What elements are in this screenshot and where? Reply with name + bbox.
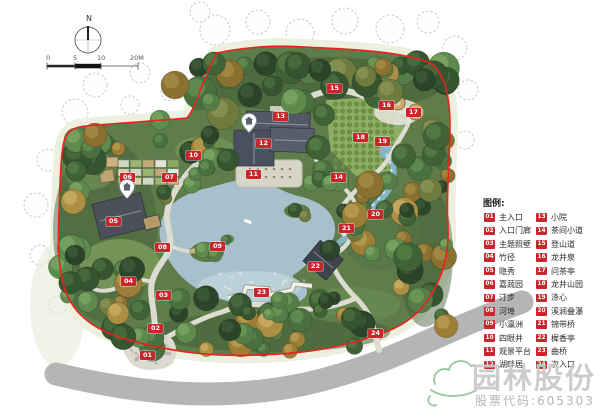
legend-badge: 13: [536, 213, 547, 222]
map-marker-21: 21: [339, 224, 354, 233]
legend-label: 登山道: [551, 239, 575, 250]
scale-tick-10: 10: [97, 54, 105, 62]
legend-label: 涤心: [551, 292, 567, 303]
legend-badge: 20: [536, 307, 547, 316]
legend-label: 嘉蔬园: [499, 279, 523, 290]
legend-label: 小瀛洲: [499, 319, 523, 330]
scale-tick-20m: 20M: [130, 54, 144, 62]
legend-badge: 15: [536, 240, 547, 249]
legend-badge: 09: [484, 320, 495, 329]
legend-badge: 06: [484, 280, 495, 289]
legend-item-12: 12湖畔居: [484, 358, 523, 371]
legend-title: 图例:: [483, 196, 505, 209]
legend-item-03: 03主题照壁: [484, 238, 531, 251]
map-marker-22: 22: [308, 262, 323, 271]
map-marker-08: 08: [155, 243, 170, 252]
legend-badge: 23: [536, 347, 547, 356]
map-marker-19: 19: [375, 137, 390, 146]
map-marker-13: 13: [273, 112, 288, 121]
legend-label: 四眼井: [499, 333, 523, 344]
legend-badge: 14: [536, 227, 547, 236]
map-marker-01: 01: [140, 351, 155, 360]
legend-item-17: 17问茶亭: [536, 265, 575, 278]
map-marker-05: 05: [106, 217, 121, 226]
legend-item-09: 09小瀛洲: [484, 318, 523, 331]
map-marker-17: 17: [406, 108, 421, 117]
map-marker-11: 11: [246, 170, 261, 179]
map-marker-23: 23: [254, 288, 269, 297]
legend-item-02: 02入口门廊: [484, 224, 531, 237]
scale-tick-0: 0: [46, 54, 50, 62]
map-marker-16: 16: [379, 101, 394, 110]
map-marker-18: 18: [353, 133, 368, 142]
legend-badge: 21: [536, 320, 547, 329]
legend-item-23: 23曲桥: [536, 345, 567, 358]
legend-item-07: 07汀步: [484, 291, 515, 304]
legend-badge: 18: [536, 280, 547, 289]
legend-label: 次入口: [551, 359, 575, 370]
north-label: N: [86, 14, 92, 23]
legend-badge: 24: [536, 361, 547, 370]
map-marker-12: 12: [256, 139, 271, 148]
legend-item-20: 20溪涧叠瀑: [536, 305, 583, 318]
legend-item-24: 24次入口: [536, 358, 575, 371]
map-marker-03: 03: [156, 291, 171, 300]
scale-bar: 0 5 10 20M: [42, 52, 152, 74]
legend-badge: 03: [484, 240, 495, 249]
legend-label: 龙井泉: [551, 252, 575, 263]
legend-item-06: 06嘉蔬园: [484, 278, 523, 291]
map-marker-20: 20: [368, 210, 383, 219]
legend-badge: 07: [484, 294, 495, 303]
legend-label: 入口门廊: [499, 225, 531, 236]
map-marker-09: 09: [210, 242, 225, 251]
legend-item-15: 15登山道: [536, 238, 575, 251]
legend-label: 湖畔居: [499, 359, 523, 370]
legend-label: 汀步: [499, 292, 515, 303]
legend-item-19: 19涤心: [536, 291, 567, 304]
legend-item-21: 21锦带桥: [536, 318, 575, 331]
legend-badge: 19: [536, 294, 547, 303]
legend-label: 问茶亭: [551, 266, 575, 277]
site-plan-page: N 0 5 10 20M 图例: 01主入口02入口门廊03主题照壁04竹径05…: [0, 0, 600, 418]
map-marker-10: 10: [186, 151, 201, 160]
legend-badge: 02: [484, 227, 495, 236]
legend-item-11: 11观景平台: [484, 345, 531, 358]
legend-badge: 11: [484, 347, 495, 356]
map-marker-04: 04: [121, 277, 136, 286]
legend-item-04: 04竹径: [484, 251, 515, 264]
legend-item-01: 01主入口: [484, 211, 523, 224]
legend-item-08: 08河埠: [484, 305, 515, 318]
legend-item-13: 13小院: [536, 211, 567, 224]
legend-label: 河埠: [499, 306, 515, 317]
legend-label: 隐秀: [499, 266, 515, 277]
legend-label: 龙井山园: [551, 279, 583, 290]
map-marker-24: 24: [368, 329, 383, 338]
pin-lakeside-house-icon: [241, 113, 257, 133]
legend-item-22: 22樨香亭: [536, 332, 575, 345]
legend-label: 茶间小道: [551, 225, 583, 236]
legend-badge: 08: [484, 307, 495, 316]
map-marker-07: 07: [162, 173, 177, 182]
legend-badge: 04: [484, 253, 495, 262]
legend-item-10: 10四眼井: [484, 332, 523, 345]
legend-badge: 22: [536, 334, 547, 343]
legend-badge: 16: [536, 253, 547, 262]
scale-tick-5: 5: [73, 54, 77, 62]
legend-label: 小院: [551, 212, 567, 223]
legend-label: 主题照壁: [499, 239, 531, 250]
legend-label: 锦带桥: [551, 319, 575, 330]
map-marker-14: 14: [331, 173, 346, 182]
legend-item-14: 14茶间小道: [536, 224, 583, 237]
legend-label: 溪涧叠瀑: [551, 306, 583, 317]
legend-badge: 17: [536, 267, 547, 276]
legend-badge: 12: [484, 361, 495, 370]
legend-label: 主入口: [499, 212, 523, 223]
legend-label: 竹径: [499, 252, 515, 263]
map-marker-02: 02: [148, 324, 163, 333]
pin-hidden-beauty-icon: [119, 179, 135, 199]
legend-label: 曲桥: [551, 346, 567, 357]
legend-label: 观景平台: [499, 346, 531, 357]
legend-item-05: 05隐秀: [484, 265, 515, 278]
legend-badge: 05: [484, 267, 495, 276]
map-marker-15: 15: [327, 84, 342, 93]
legend-badge: 10: [484, 334, 495, 343]
legend-label: 樨香亭: [551, 333, 575, 344]
legend-item-18: 18龙井山园: [536, 278, 583, 291]
legend-badge: 01: [484, 213, 495, 222]
legend-item-16: 16龙井泉: [536, 251, 575, 264]
